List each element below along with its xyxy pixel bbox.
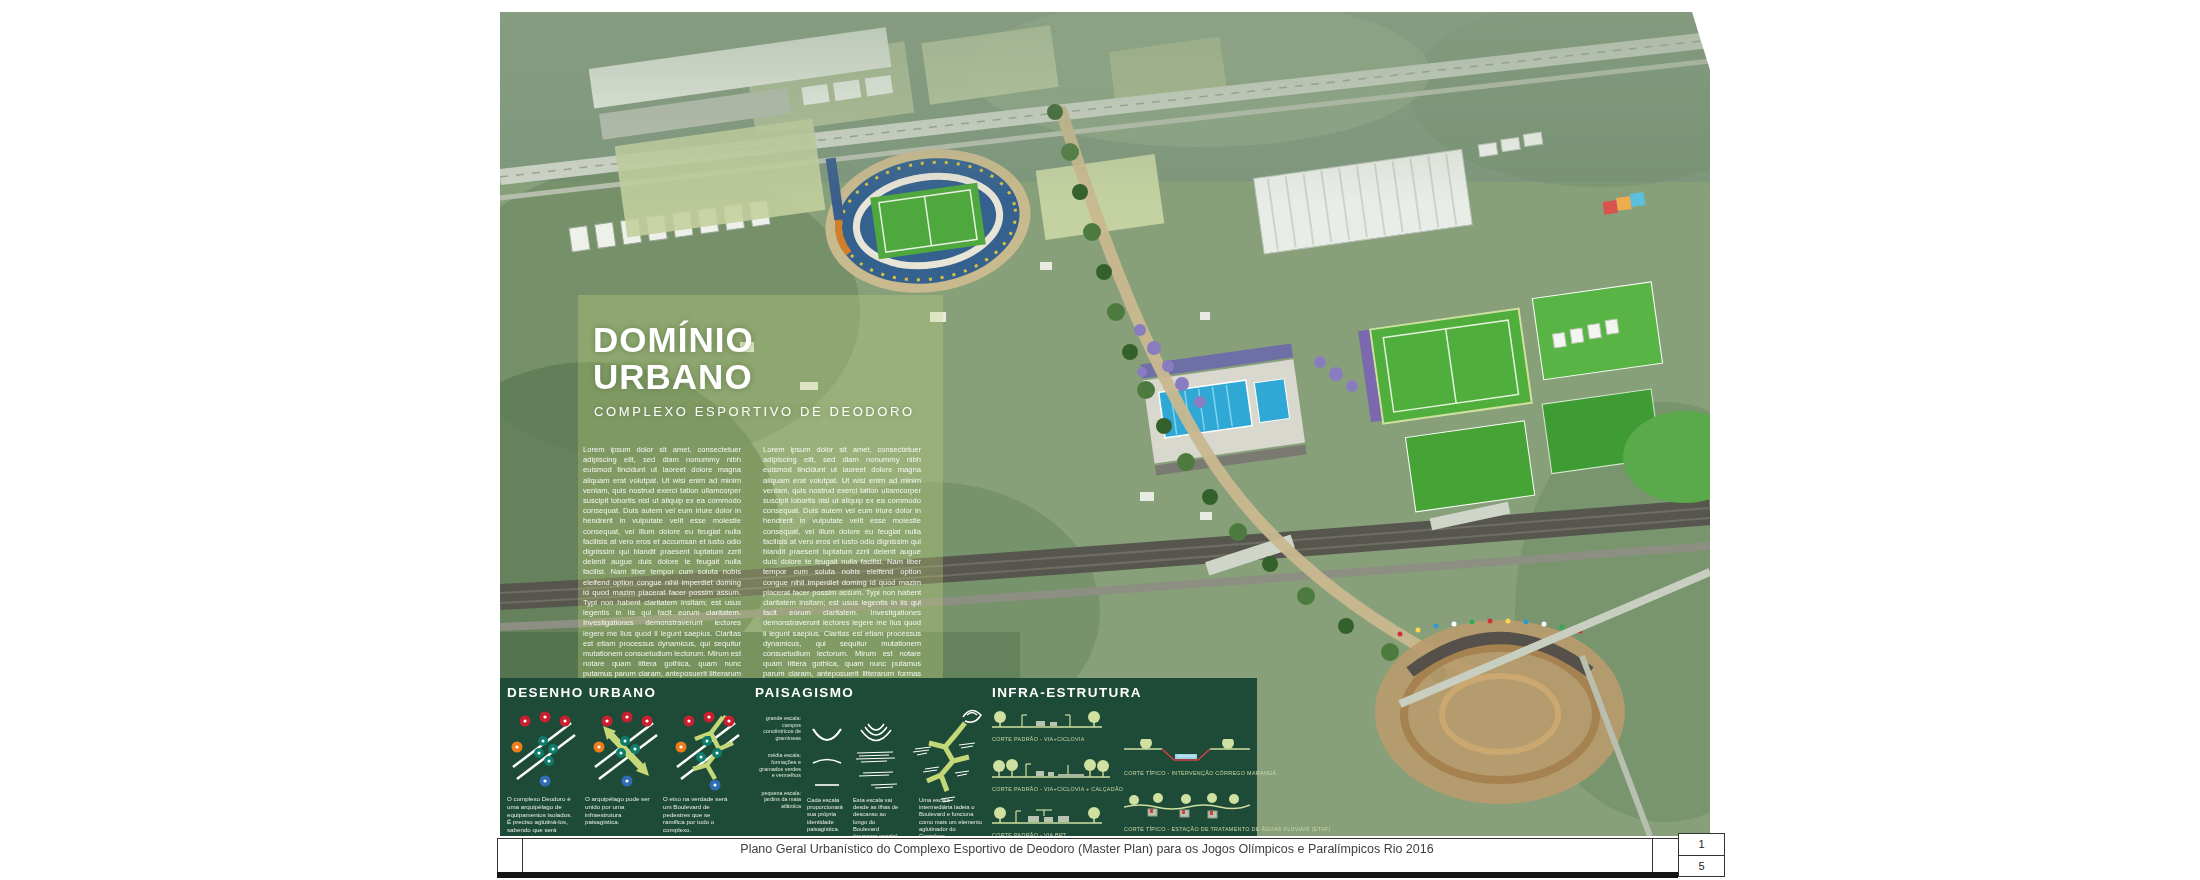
sketch-scale-curves bbox=[807, 711, 847, 795]
scale-label-media: média escala: formações e gramados verde… bbox=[755, 752, 801, 778]
section-title-paisagismo: PAISAGISMO bbox=[755, 685, 989, 700]
section-infra-estrutura: INFRA-ESTRUTURA CORTE PADRÃO - VIA+CICLO… bbox=[992, 685, 1252, 700]
page-number-box: 1 5 bbox=[1678, 833, 1725, 878]
page-number-total: 5 bbox=[1678, 855, 1725, 877]
section-desenho-urbano: DESENHO URBANO bbox=[507, 685, 755, 700]
desenho-captions: O complexo Deodoro é uma arquipélago de … bbox=[507, 795, 733, 836]
diagram-boulevard-branches bbox=[671, 709, 745, 791]
scale-label-grande: grande escala: campos concêntricos de gr… bbox=[755, 715, 801, 741]
diagram-caption: O complexo Deodoro é uma arquipélago de … bbox=[507, 795, 577, 836]
corte-label: CORTE PADRÃO - VIA BRT bbox=[992, 832, 1102, 836]
corte-via-ciclovia: CORTE PADRÃO - VIA+CICLOVIA bbox=[992, 709, 1102, 742]
desenho-diagrams bbox=[507, 709, 745, 791]
masterplan-poster: DOMÍNIO URBANO COMPLEXO ESPORTIVO DE DEO… bbox=[500, 12, 1710, 836]
corte-via-ciclovia-calcadao: CORTE PADRÃO - VIA+CICLOVIA + CALÇADÃO bbox=[992, 757, 1123, 792]
diagram-caption: O arquipélago pode ser unido por uma inf… bbox=[585, 795, 655, 836]
diagram-axis-arrow bbox=[589, 709, 663, 791]
sketch-hatch-fields bbox=[853, 711, 899, 795]
footer-rule bbox=[497, 872, 1678, 878]
section-title-desenho: DESENHO URBANO bbox=[507, 685, 755, 700]
sketch-caption: Cada escala proporcionará sua própria id… bbox=[807, 797, 849, 833]
diagram-caption: O eixo na verdade será um Boulevard de p… bbox=[663, 795, 733, 836]
scale-label-pequena: pequena escala: jardins da mata atlântic… bbox=[755, 790, 801, 810]
sketch-boulevard-plan bbox=[901, 703, 989, 807]
title-overlay: DOMÍNIO URBANO COMPLEXO ESPORTIVO DE DEO… bbox=[578, 295, 943, 687]
footer-divider bbox=[497, 839, 498, 873]
corte-diagram bbox=[992, 805, 1102, 827]
section-paisagismo: PAISAGISMO grande escala: campos concênt… bbox=[755, 685, 989, 700]
corte-diagram bbox=[992, 709, 1102, 731]
corte-via-brt: CORTE PADRÃO - VIA BRT bbox=[992, 805, 1102, 836]
corte-label: CORTE TÍPICO - INTERVENÇÃO CÓRREGO MARAN… bbox=[1124, 770, 1276, 776]
corte-label: CORTE PADRÃO - VIA+CICLOVIA bbox=[992, 736, 1102, 742]
legend-panel: DESENHO URBANO bbox=[500, 678, 1257, 836]
corte-diagram bbox=[1124, 793, 1250, 821]
section-title-infra: INFRA-ESTRUTURA bbox=[992, 685, 1252, 700]
diagram-archipelago bbox=[507, 709, 581, 791]
corte-corrego-maranga: CORTE TÍPICO - INTERVENÇÃO CÓRREGO MARAN… bbox=[1124, 739, 1276, 776]
corte-diagram bbox=[992, 757, 1110, 781]
sketch-caption: Uma escala intermediária ladeia o Boulev… bbox=[919, 797, 983, 836]
corte-label: CORTE TÍPICO - ESTAÇÃO DE TRATAMENTO DE … bbox=[1124, 826, 1331, 832]
footer-divider bbox=[1652, 839, 1653, 873]
paisagismo-scale-labels: grande escala: campos concêntricos de gr… bbox=[755, 715, 801, 821]
page-title-line1: DOMÍNIO bbox=[578, 295, 943, 358]
corte-etaf: CORTE TÍPICO - ESTAÇÃO DE TRATAMENTO DE … bbox=[1124, 793, 1331, 832]
footer-caption: Plano Geral Urbanístico do Complexo Espo… bbox=[522, 842, 1652, 856]
corte-label: CORTE PADRÃO - VIA+CICLOVIA + CALÇADÃO bbox=[992, 786, 1123, 792]
sketch-caption: Esta escala vai desde as ilhas de descan… bbox=[853, 797, 899, 836]
page-subtitle: COMPLEXO ESPORTIVO DE DEODORO bbox=[578, 404, 943, 419]
corte-diagram bbox=[1124, 739, 1250, 765]
presentation-sheet: DOMÍNIO URBANO COMPLEXO ESPORTIVO DE DEO… bbox=[0, 0, 2200, 880]
page-number-current: 1 bbox=[1678, 833, 1725, 856]
footer-caption-bar: Plano Geral Urbanístico do Complexo Espo… bbox=[497, 838, 1725, 873]
page-title-line2: URBANO bbox=[578, 358, 943, 395]
